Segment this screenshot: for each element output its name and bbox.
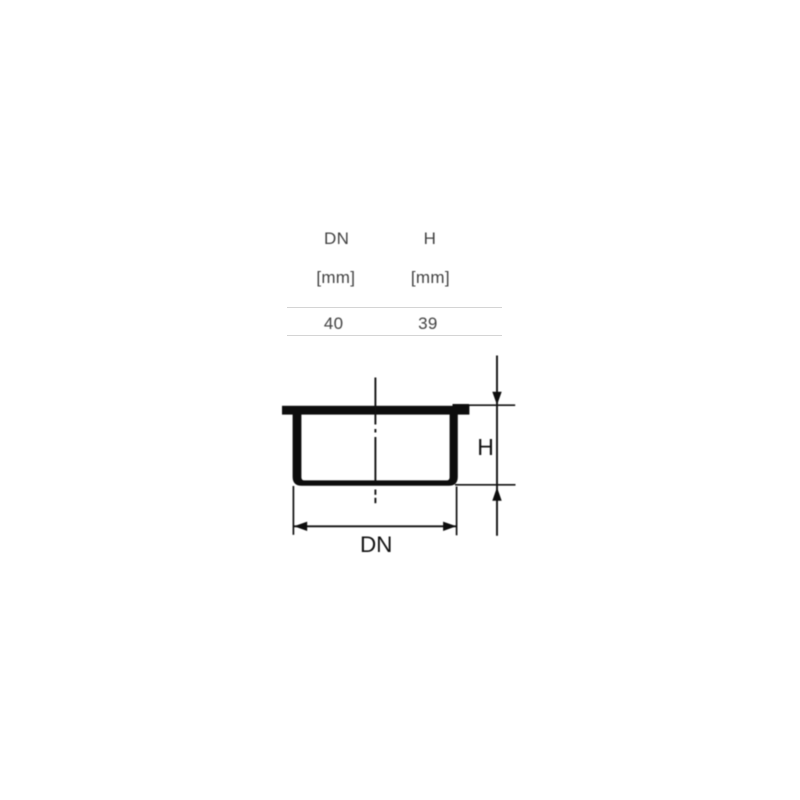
svg-text:DN: DN — [360, 532, 393, 557]
svg-text:H: H — [477, 434, 494, 460]
